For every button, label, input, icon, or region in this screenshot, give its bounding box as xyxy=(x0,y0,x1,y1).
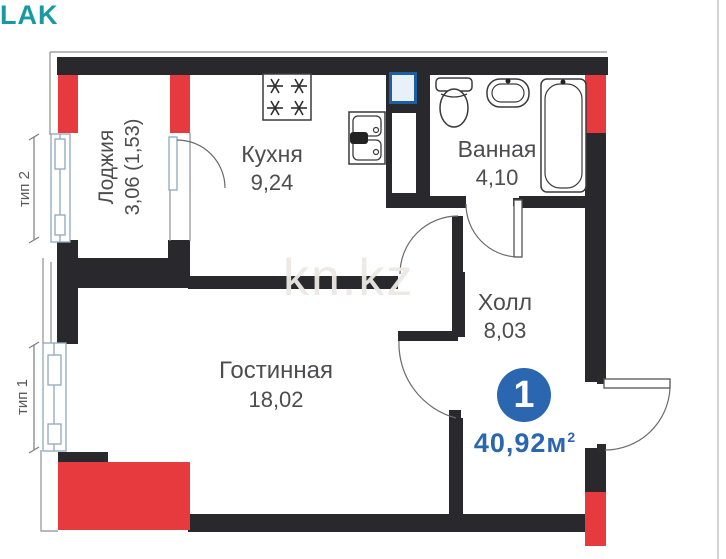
red-block-bottom-left xyxy=(58,462,190,530)
vent-shaft-icon xyxy=(389,72,417,104)
type-label-1: тип 1 xyxy=(0,375,53,419)
wall-loggia-bottom xyxy=(57,258,190,288)
wall-bathroom-bottom-left xyxy=(386,196,466,208)
room-label-loggia: Лоджия 3,06 (1,53) xyxy=(58,102,182,232)
room-label-kitchen: Кухня 9,24 xyxy=(212,140,332,196)
stove-icon xyxy=(263,74,311,120)
wall-bottom xyxy=(188,514,587,532)
room-name: Гостинная xyxy=(196,356,356,386)
wall-bathroom-bottom-right xyxy=(519,196,587,208)
kitchen-sink-icon xyxy=(349,112,385,164)
total-area-label: 40,92м2 xyxy=(445,428,605,459)
wall-left-junction xyxy=(57,240,78,344)
pier-right-upper xyxy=(585,75,606,133)
washbasin-icon xyxy=(487,79,529,108)
door-bathroom xyxy=(466,198,523,257)
wall-top xyxy=(57,57,608,75)
room-name: Холл xyxy=(445,288,565,317)
site-watermark: kn.kz xyxy=(283,248,414,308)
wall-loggia-right-lower xyxy=(168,240,190,260)
room-area: 9,24 xyxy=(212,169,332,197)
vent-shaft-inner xyxy=(392,113,416,193)
total-area-exponent: 2 xyxy=(567,429,576,445)
toilet-icon xyxy=(436,78,472,127)
rooms-count-badge: 1 xyxy=(497,368,551,422)
room-label-hall: Холл 8,03 xyxy=(445,288,565,344)
total-area-value: 40,92м xyxy=(474,428,568,458)
brand-logo: LAK xyxy=(0,0,59,31)
wall-right-upper xyxy=(585,133,606,382)
room-label-living: Гостинная 18,02 xyxy=(196,356,356,414)
room-name: Кухня xyxy=(212,140,332,169)
pier-right-lower xyxy=(585,492,606,546)
page-edge-divider xyxy=(717,0,719,559)
room-area: 4,10 xyxy=(437,164,557,192)
room-name: Ванная xyxy=(437,135,557,164)
room-area: 18,02 xyxy=(196,386,356,414)
door-entrance xyxy=(597,375,670,453)
room-name: Лоджия xyxy=(94,130,120,204)
type-label-2: тип 2 xyxy=(0,167,55,211)
room-area: 3,06 (1,53) xyxy=(121,119,146,216)
floorplan-page: LAK xyxy=(0,0,726,559)
room-label-bathroom: Ванная 4,10 xyxy=(437,135,557,191)
room-area: 8,03 xyxy=(445,317,565,345)
